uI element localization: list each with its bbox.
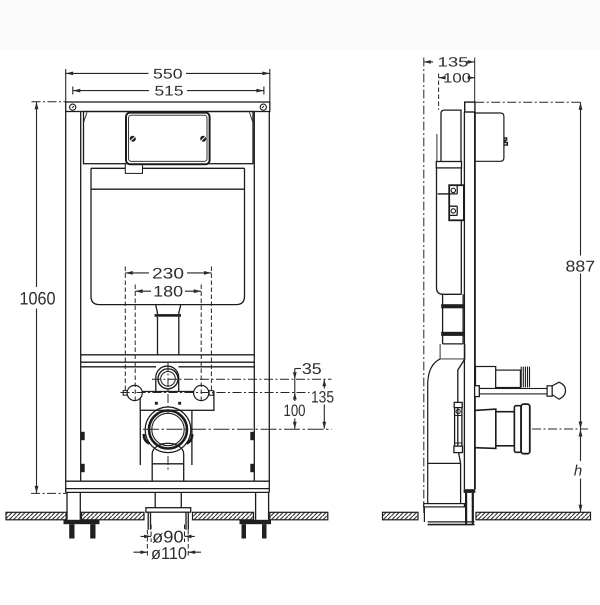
svg-text:h: h [574, 462, 582, 479]
svg-text:515: 515 [155, 83, 184, 99]
svg-text:230: 230 [152, 265, 184, 282]
svg-text:135: 135 [311, 389, 334, 407]
svg-text:180: 180 [153, 284, 183, 301]
svg-text:100: 100 [284, 402, 306, 420]
svg-text:1060: 1060 [20, 289, 56, 309]
svg-text:550: 550 [153, 65, 183, 81]
svg-text:35: 35 [302, 361, 322, 378]
svg-text:887: 887 [566, 258, 596, 275]
svg-text:135: 135 [438, 55, 469, 70]
svg-text:ø110: ø110 [151, 544, 187, 563]
svg-text:100: 100 [443, 70, 471, 85]
